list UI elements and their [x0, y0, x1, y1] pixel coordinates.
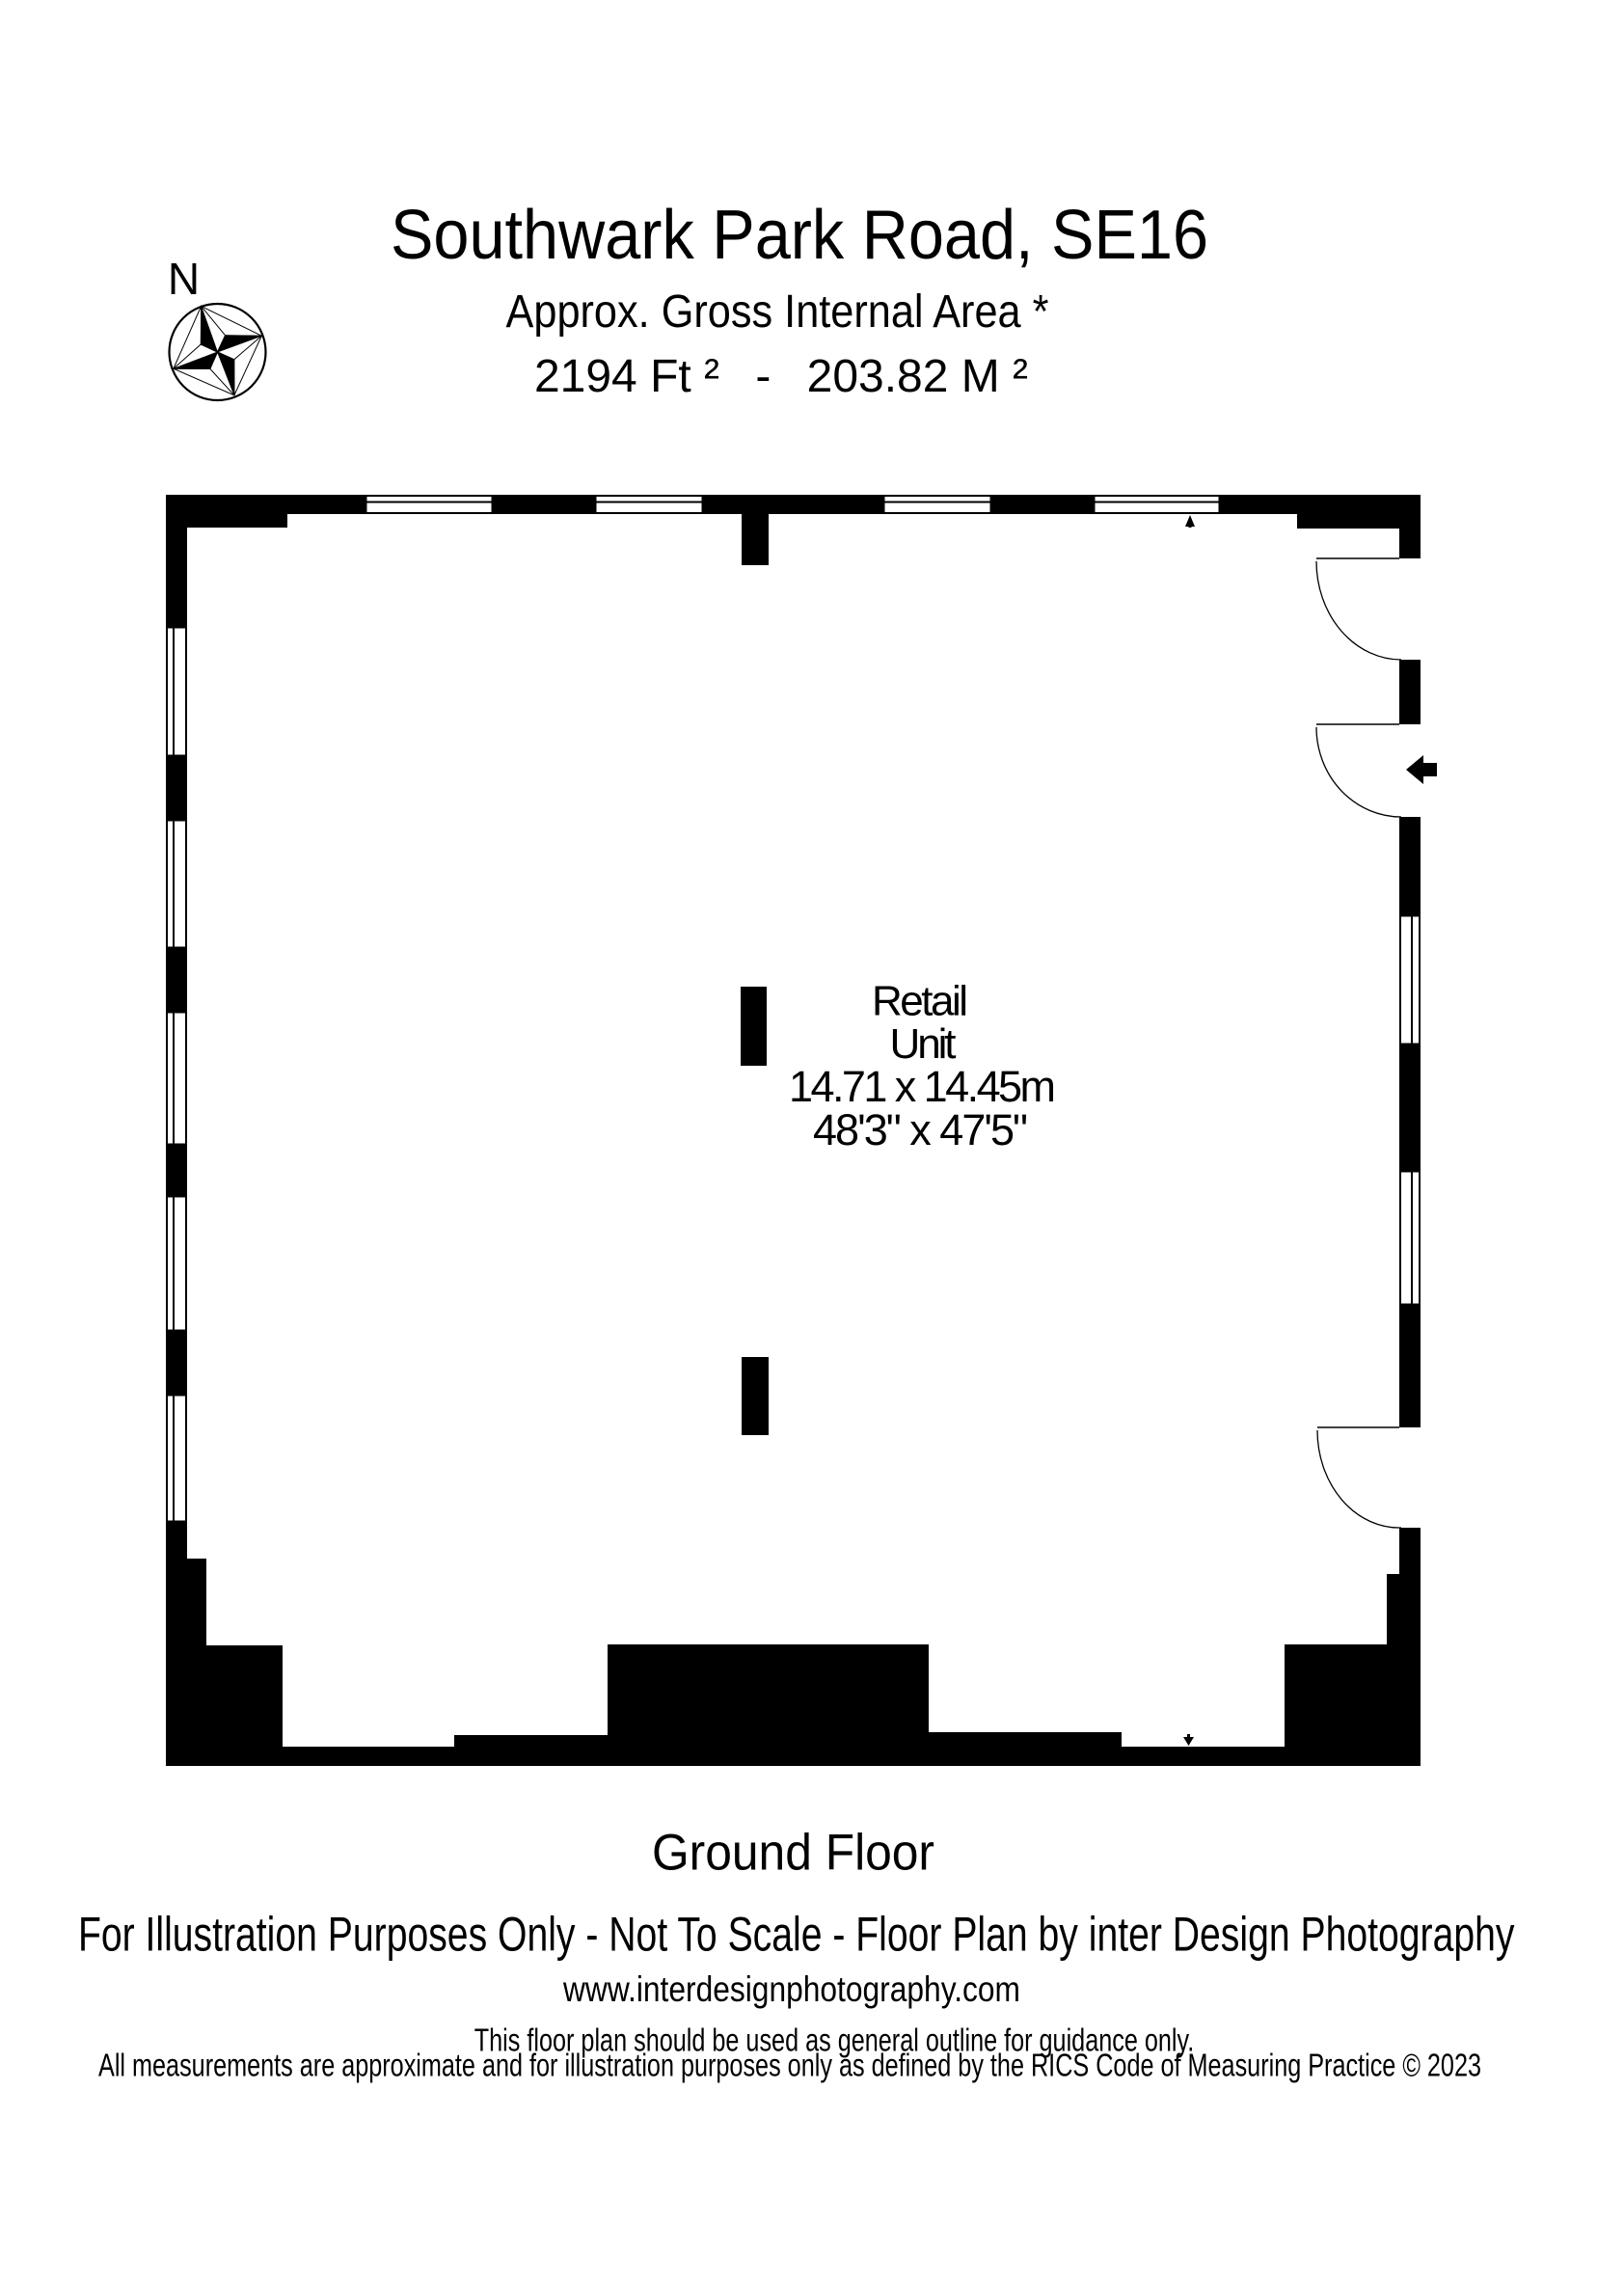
- svg-text:Approx. Gross Internal Area *: Approx. Gross Internal Area *: [506, 286, 1049, 338]
- svg-text:48'3" x 47'5": 48'3" x 47'5": [813, 1105, 1028, 1154]
- svg-text:2194 Ft ² - 203.82 M ²: 2194 Ft ² - 203.82 M ²: [534, 351, 1028, 402]
- svg-text:Ground Floor: Ground Floor: [652, 1825, 934, 1882]
- svg-text:Southwark Park Road, SE16: Southwark Park Road, SE16: [391, 197, 1208, 274]
- svg-text:N: N: [168, 254, 200, 304]
- svg-text:For Illustration Purposes Only: For Illustration Purposes Only - Not To …: [78, 1908, 1515, 1962]
- svg-text:Unit: Unit: [890, 1020, 957, 1068]
- svg-text:www.interdesignphotography.com: www.interdesignphotography.com: [562, 1968, 1020, 2009]
- svg-text:14.71 x 14.45m: 14.71 x 14.45m: [789, 1062, 1056, 1111]
- svg-text:All measurements are approxima: All measurements are approximate and for…: [98, 2048, 1481, 2083]
- svg-text:Retail: Retail: [872, 978, 968, 1025]
